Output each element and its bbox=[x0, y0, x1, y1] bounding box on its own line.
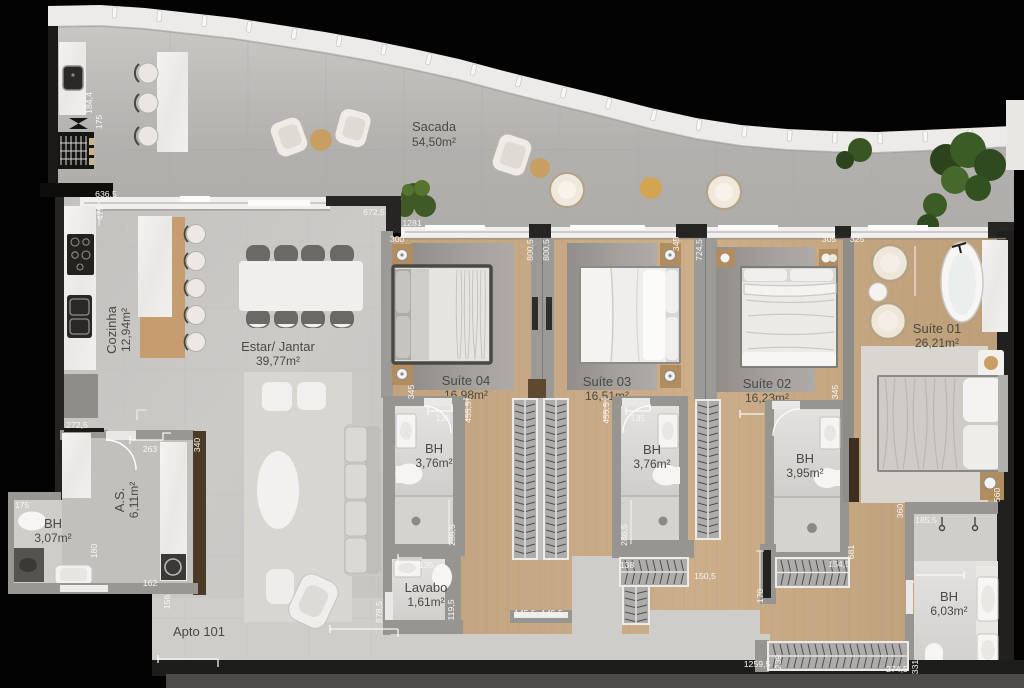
svg-text:12,94m²: 12,94m² bbox=[119, 308, 133, 352]
svg-text:Cozinha: Cozinha bbox=[104, 305, 119, 353]
svg-text:239: 239 bbox=[773, 655, 783, 670]
svg-text:54,50m²: 54,50m² bbox=[412, 135, 456, 149]
svg-text:135: 135 bbox=[419, 560, 434, 570]
svg-text:185,5: 185,5 bbox=[915, 515, 937, 525]
svg-text:274,5: 274,5 bbox=[886, 664, 908, 674]
svg-text:455,5: 455,5 bbox=[601, 402, 611, 424]
svg-text:BH: BH bbox=[940, 589, 958, 604]
svg-text:800,5: 800,5 bbox=[525, 239, 535, 261]
svg-text:1281: 1281 bbox=[402, 218, 421, 228]
svg-text:3,76m²: 3,76m² bbox=[415, 456, 452, 470]
svg-text:175: 175 bbox=[94, 115, 104, 130]
svg-text:184,4: 184,4 bbox=[84, 92, 94, 114]
svg-text:170: 170 bbox=[755, 589, 765, 604]
svg-text:286,5: 286,5 bbox=[619, 524, 629, 546]
svg-text:162: 162 bbox=[143, 578, 158, 588]
svg-text:119,5: 119,5 bbox=[446, 599, 456, 620]
svg-text:180: 180 bbox=[89, 544, 99, 559]
svg-text:724,5: 724,5 bbox=[694, 239, 704, 261]
svg-text:Apto 101: Apto 101 bbox=[173, 624, 225, 639]
svg-text:Suíte 01: Suíte 01 bbox=[913, 321, 961, 336]
svg-text:1,61m²: 1,61m² bbox=[407, 595, 444, 609]
svg-text:135: 135 bbox=[631, 413, 646, 423]
svg-text:135: 135 bbox=[436, 413, 451, 423]
svg-text:681: 681 bbox=[846, 545, 856, 560]
svg-text:Suíte 02: Suíte 02 bbox=[743, 376, 791, 391]
svg-text:175: 175 bbox=[15, 500, 30, 510]
svg-text:263: 263 bbox=[143, 444, 158, 454]
svg-text:305: 305 bbox=[822, 234, 837, 244]
svg-text:150,5: 150,5 bbox=[694, 571, 716, 581]
svg-text:39,77m²: 39,77m² bbox=[256, 354, 300, 368]
svg-text:331: 331 bbox=[910, 660, 920, 675]
svg-text:455,5: 455,5 bbox=[463, 401, 473, 423]
svg-text:345: 345 bbox=[406, 385, 416, 400]
svg-text:345: 345 bbox=[671, 237, 681, 252]
svg-text:Suíte 03: Suíte 03 bbox=[583, 374, 631, 389]
svg-text:6,03m²: 6,03m² bbox=[930, 604, 967, 618]
svg-text:475: 475 bbox=[95, 206, 105, 221]
svg-text:Suíte 04: Suíte 04 bbox=[442, 373, 490, 388]
svg-text:340: 340 bbox=[192, 438, 202, 453]
svg-text:156: 156 bbox=[162, 595, 172, 610]
svg-text:145,5: 145,5 bbox=[541, 608, 563, 618]
svg-text:138: 138 bbox=[620, 560, 635, 570]
svg-text:325: 325 bbox=[850, 234, 865, 244]
svg-text:345: 345 bbox=[830, 385, 840, 400]
svg-text:300: 300 bbox=[390, 234, 405, 244]
svg-text:154,5: 154,5 bbox=[828, 559, 850, 569]
svg-text:A.S.: A.S. bbox=[112, 488, 127, 513]
svg-text:1259,5: 1259,5 bbox=[744, 659, 771, 669]
svg-text:Estar/ Jantar: Estar/ Jantar bbox=[241, 339, 315, 354]
svg-text:636,5: 636,5 bbox=[95, 189, 117, 199]
svg-text:878,5: 878,5 bbox=[374, 601, 384, 623]
svg-text:360: 360 bbox=[895, 504, 905, 519]
svg-text:Lavabo: Lavabo bbox=[405, 580, 448, 595]
svg-text:BH: BH bbox=[796, 451, 814, 466]
svg-text:145,5: 145,5 bbox=[514, 608, 536, 618]
svg-text:BH: BH bbox=[425, 441, 443, 456]
svg-text:BH: BH bbox=[643, 442, 661, 457]
svg-text:3,95m²: 3,95m² bbox=[786, 466, 823, 480]
svg-text:3,76m²: 3,76m² bbox=[633, 457, 670, 471]
svg-text:6,11m²: 6,11m² bbox=[127, 482, 141, 518]
svg-text:272,5: 272,5 bbox=[66, 420, 88, 430]
svg-text:BH: BH bbox=[44, 516, 62, 531]
svg-text:286,5: 286,5 bbox=[447, 524, 457, 546]
svg-text:560: 560 bbox=[992, 488, 1002, 503]
svg-text:3,07m²: 3,07m² bbox=[34, 531, 71, 545]
svg-text:672,5: 672,5 bbox=[363, 207, 385, 217]
svg-text:Sacada: Sacada bbox=[412, 119, 457, 134]
svg-text:26,21m²: 26,21m² bbox=[915, 336, 959, 350]
svg-text:800,5: 800,5 bbox=[541, 239, 551, 261]
